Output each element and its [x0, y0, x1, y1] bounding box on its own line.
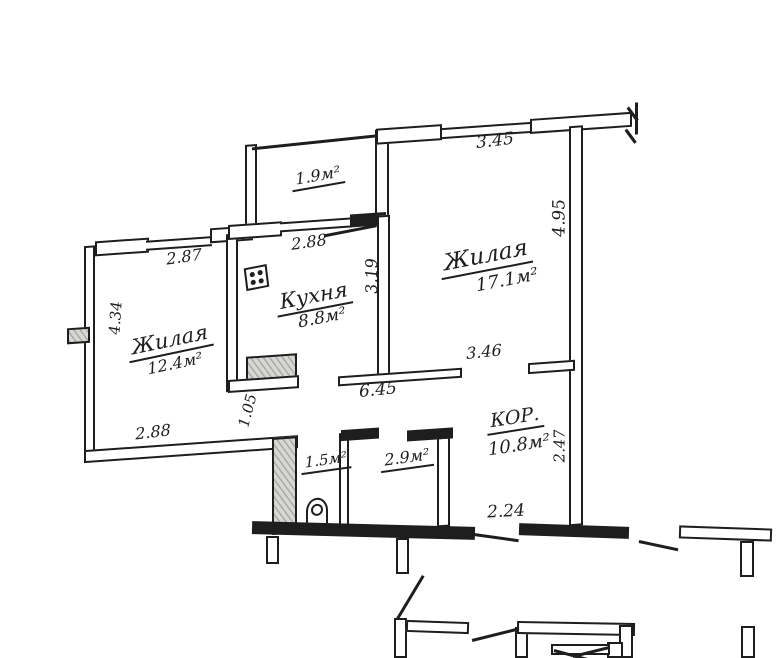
floorplan-scan: 1.9м² Жилая 12.4м² Жилая 17.1м² Кухня 8.…	[0, 0, 776, 658]
neighbor-wall-stub	[740, 541, 754, 577]
stair-hall-wall-vertical	[394, 618, 407, 658]
corridor-wall-stub	[266, 536, 279, 564]
corridor-wall-stub	[396, 538, 409, 574]
entry-door-swing-line	[474, 533, 519, 542]
dim-entry-wall: 2.24	[487, 503, 526, 522]
stairwell-wall-top	[517, 621, 635, 636]
stair-door-swing-line	[472, 627, 519, 641]
stairwell-wall-stub-right	[741, 626, 755, 658]
building-common-area: 2.24	[0, 0, 776, 658]
wall-entry-bottom-right	[519, 523, 629, 539]
lower-door-swing-line	[395, 575, 424, 621]
neighbor-door-swing-line	[639, 540, 679, 551]
wall-entry-bottom-left	[252, 521, 475, 540]
neighbor-wall-bar	[679, 525, 772, 541]
stair-hall-wall-horizontal	[406, 620, 469, 634]
